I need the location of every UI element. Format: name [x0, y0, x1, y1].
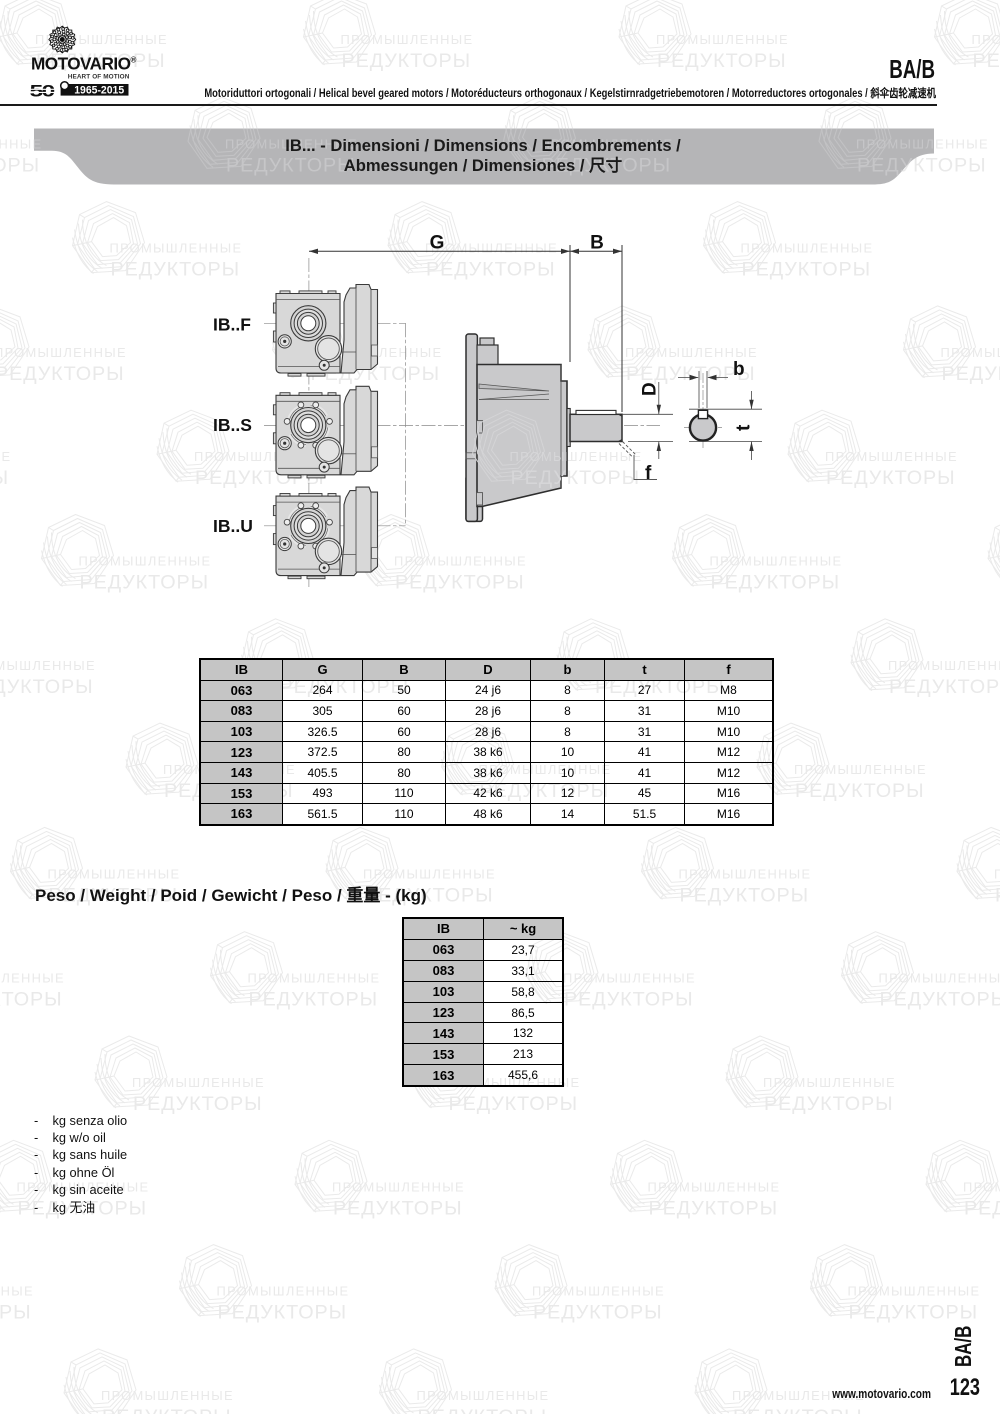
svg-text:РЕДУКТОРЫ: РЕДУКТОРЫ [857, 154, 986, 176]
svg-text:ПРОМЫШЛЕННЫЕ: ПРОМЫШЛЕННЫЕ [510, 449, 643, 464]
svg-text:IB..U: IB..U [213, 516, 253, 536]
svg-text:ПРОМЫШЛЕННЫЕ: ПРОМЫШЛЕННЫЕ [394, 554, 527, 569]
svg-text:ПРОМЫШЛЕННЫЕ: ПРОМЫШЛЕННЫЕ [0, 136, 42, 151]
svg-text:t: t [734, 424, 755, 431]
svg-text:IB..S: IB..S [213, 415, 252, 435]
svg-text:f: f [645, 463, 652, 484]
svg-text:G: G [430, 233, 445, 254]
svg-text:РЕДУКТОРЫ: РЕДУКТОРЫ [395, 572, 524, 594]
svg-text:B: B [590, 233, 604, 254]
svg-text:ПРОМЫШЛЕННЫЕ: ПРОМЫШЛЕННЫЕ [856, 136, 989, 151]
svg-text:IB..F: IB..F [213, 315, 251, 335]
svg-text:РЕДУКТОРЫ: РЕДУКТОРЫ [511, 467, 640, 489]
svg-text:РЕДУКТОРЫ: РЕДУКТОРЫ [0, 154, 40, 176]
svg-text:D: D [639, 382, 660, 396]
svg-text:b: b [733, 359, 745, 380]
